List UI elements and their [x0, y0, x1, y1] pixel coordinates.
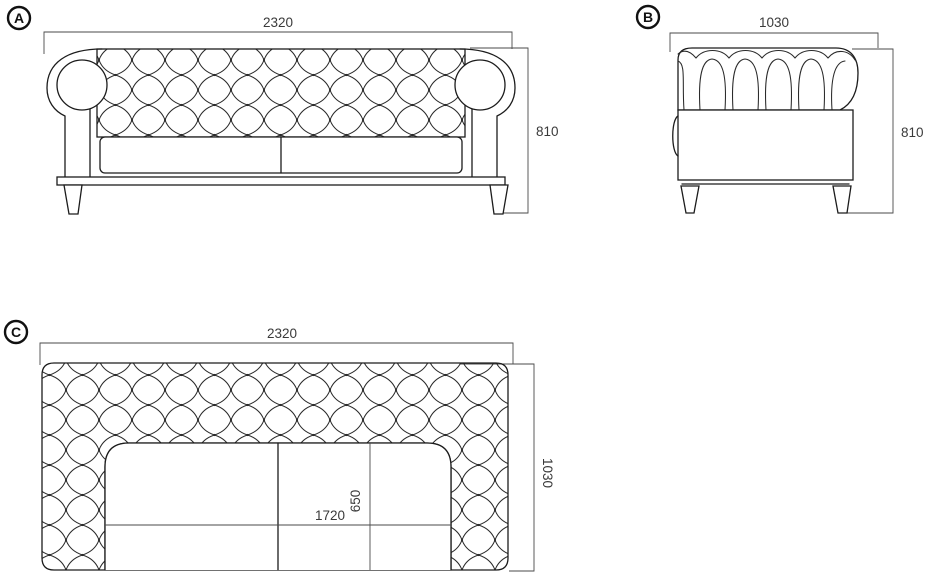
view-b-badge: B [637, 6, 659, 28]
view-a-front: A 2320 810 [8, 7, 559, 214]
view-c-width-dimension: 2320 [40, 326, 513, 365]
view-b-badge-letter: B [643, 9, 653, 25]
seat-width-value: 1720 [315, 508, 345, 523]
dimension-bracket [40, 343, 513, 365]
view-c-top: C 2320 1030 1720 [5, 321, 555, 571]
sofa-side-drawing [673, 48, 858, 213]
sofa-front-drawing [47, 49, 515, 214]
side-arm-outline [678, 48, 858, 110]
left-leg [64, 185, 82, 214]
view-a-badge: A [8, 7, 30, 29]
technical-drawing-canvas: A 2320 810 [0, 0, 939, 578]
view-b-width-dimension: 1030 [670, 15, 878, 52]
sofa-top-drawing: 1720 650 [42, 363, 508, 570]
seat-depth-value: 650 [348, 490, 363, 513]
view-a-width-dimension: 2320 [44, 15, 512, 54]
view-a-badge-letter: A [14, 10, 24, 26]
right-arm-scroll [455, 60, 505, 110]
sofa-dimension-drawing: A 2320 810 [0, 0, 939, 578]
view-c-depth-value: 1030 [540, 458, 555, 488]
view-a-width-value: 2320 [263, 15, 293, 30]
view-a-height-value: 810 [536, 124, 559, 139]
view-c-badge: C [5, 321, 27, 343]
left-arm-scroll [57, 60, 107, 110]
view-b-width-value: 1030 [759, 15, 789, 30]
side-front-leg [681, 186, 699, 213]
side-back-leg [833, 186, 851, 213]
right-leg [490, 185, 508, 214]
view-c-badge-letter: C [11, 324, 21, 340]
view-b-height-value: 810 [901, 125, 924, 140]
side-panel [678, 110, 853, 180]
view-b-side: B 1030 810 [637, 6, 924, 213]
base-rail [57, 177, 505, 185]
backrest-tufting [97, 49, 465, 137]
back-cushion-bump [673, 116, 678, 156]
view-c-width-value: 2320 [267, 326, 297, 341]
